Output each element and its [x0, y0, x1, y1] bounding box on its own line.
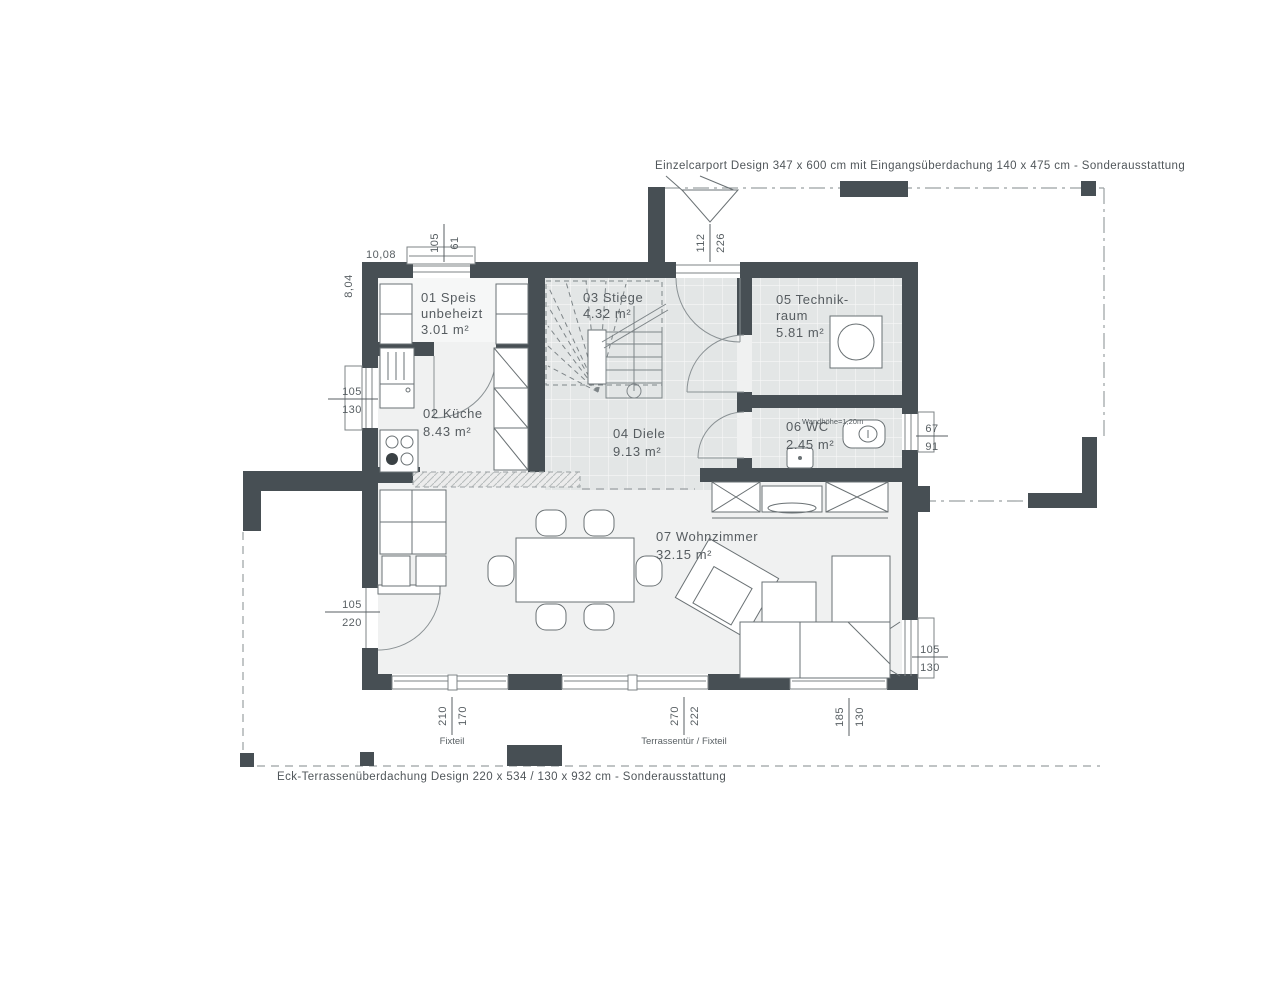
floor-plan-page: Einzelcarport Design 347 x 600 cm mit Ei…	[0, 0, 1280, 997]
label-technik-name: 05 Technik-	[776, 292, 849, 307]
carport-corner-wall-h	[1028, 493, 1097, 508]
svg-text:112: 112	[695, 233, 707, 252]
terrace-annotation: Eck-Terrassenüberdachung Design 220 x 53…	[277, 771, 726, 783]
svg-text:130: 130	[920, 662, 940, 674]
terrace-door-bottom	[562, 675, 708, 690]
svg-text:185: 185	[834, 707, 846, 727]
svg-text:130: 130	[854, 707, 866, 727]
svg-text:222: 222	[689, 706, 701, 726]
label-diele-area: 9.13 m²	[613, 444, 661, 459]
label-diele-name: 04 Diele	[613, 426, 666, 441]
svg-text:210: 210	[437, 706, 449, 726]
terrace-wall-segment	[507, 745, 562, 766]
label-technik-area: 5.81 m²	[776, 325, 824, 340]
svg-text:270: 270	[669, 706, 681, 726]
dim-corner-window-bottom: 185 130	[834, 698, 866, 736]
dim-entry-door: 112 226	[695, 224, 727, 262]
svg-text:Terrassentür / Fixteil: Terrassentür / Fixteil	[641, 736, 727, 747]
svg-text:67: 67	[925, 423, 938, 435]
label-technik-name2: raum	[776, 308, 808, 323]
label-kueche-name: 02 Küche	[423, 406, 483, 421]
svg-text:105: 105	[920, 644, 940, 656]
label-wc-note: Wandhöhe=1,20m	[802, 417, 863, 426]
carport-wall-segment	[840, 181, 908, 197]
svg-text:130: 130	[342, 404, 362, 416]
dim-terrace-door-left: 105 220	[325, 599, 380, 629]
label-stiege-area: 4.32 m²	[583, 306, 631, 321]
kitchen-cabinets	[494, 348, 528, 470]
label-stiege-name: 03 Stiege	[583, 290, 643, 305]
svg-text:170: 170	[457, 706, 469, 726]
speis-window	[407, 247, 475, 272]
fix-window-bottom	[392, 675, 508, 690]
kitchen-sink	[380, 384, 414, 408]
wind-shelter-wall-v	[243, 471, 261, 531]
svg-text:220: 220	[342, 617, 362, 629]
kitchen-window	[345, 366, 372, 430]
canopy-triangle-marker	[682, 190, 738, 222]
terrace-post	[360, 752, 374, 766]
svg-text:105: 105	[429, 233, 441, 253]
svg-text:61: 61	[449, 236, 461, 249]
svg-text:Fixteil: Fixteil	[440, 736, 465, 747]
carport-post	[1081, 181, 1096, 196]
dim-overall-width: 10,08	[366, 249, 396, 261]
carport-annotation: Einzelcarport Design 347 x 600 cm mit Ei…	[655, 160, 1185, 172]
svg-text:105: 105	[342, 386, 362, 398]
label-wc-area: 2.45 m²	[786, 437, 834, 452]
coffee-table	[762, 582, 816, 628]
label-wohnzimmer-area: 32.15 m²	[656, 547, 712, 562]
svg-text:105: 105	[342, 599, 362, 611]
svg-text:226: 226	[715, 233, 727, 253]
boiler	[830, 316, 882, 368]
label-speis-name: 01 Speis	[421, 290, 476, 305]
floor-plan: Einzelcarport Design 347 x 600 cm mit Ei…	[0, 0, 1280, 997]
label-kueche-area: 8.43 m²	[423, 424, 471, 439]
dim-fix-window-bottom: 210 170 Fixteil	[437, 697, 469, 747]
label-speis-sub: unbeheizt	[421, 306, 483, 321]
label-speis-area: 3.01 m²	[421, 322, 469, 337]
terrace-post	[240, 753, 254, 767]
svg-text:91: 91	[925, 441, 938, 453]
dim-terrace-door-bottom: 270 222 Terrassentür / Fixteil	[641, 697, 727, 747]
kitchen-stove	[380, 430, 418, 472]
label-wohnzimmer-name: 07 Wohnzimmer	[656, 529, 758, 544]
dim-overall-height: 8,04	[343, 274, 355, 297]
